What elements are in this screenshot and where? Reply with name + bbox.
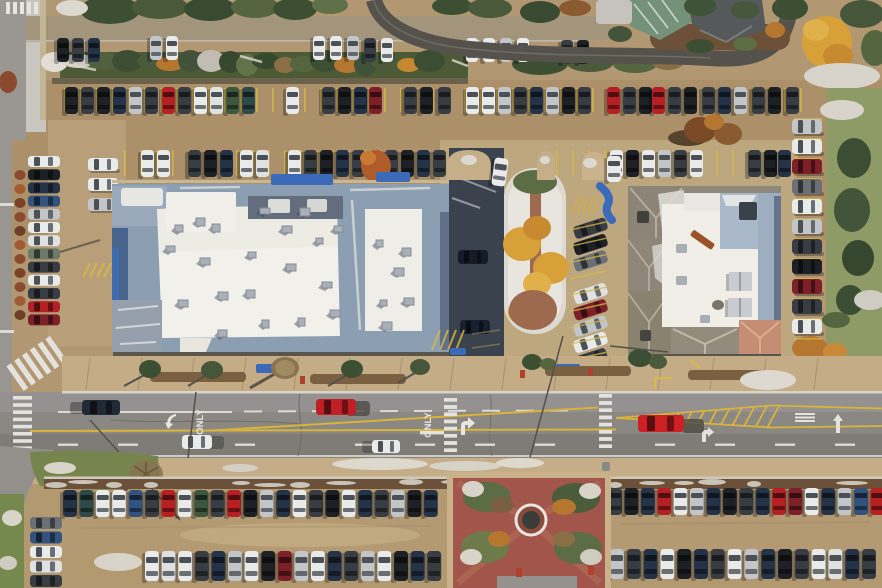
svg-text:ONLY: ONLY bbox=[195, 409, 206, 435]
svg-text:ONLY: ONLY bbox=[423, 412, 434, 438]
